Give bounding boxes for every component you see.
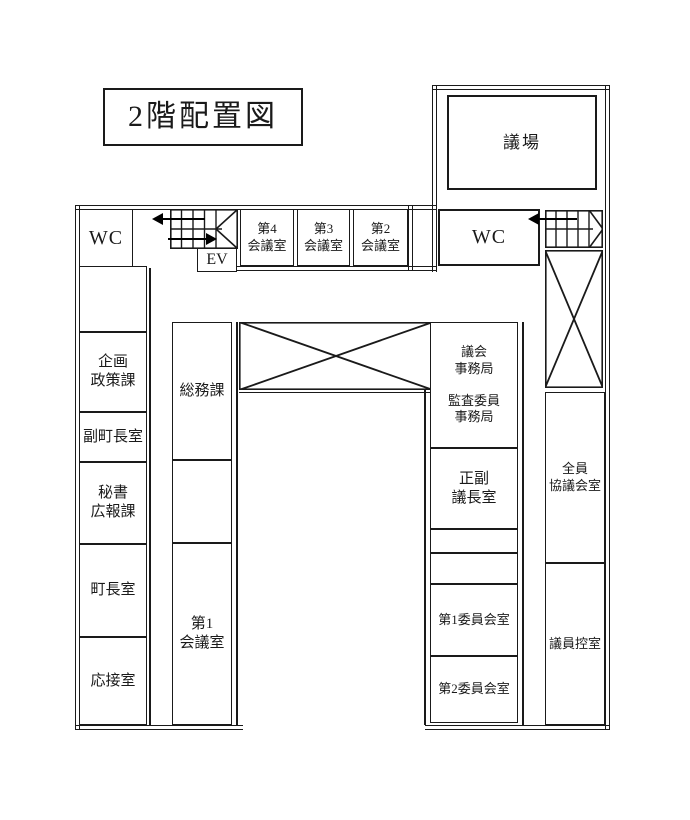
room-label: 全員 協議会室 <box>549 461 601 494</box>
wall-leftwing-inner <box>149 268 151 725</box>
room-meeting-3: 第3 会議室 <box>297 209 350 266</box>
room-label: 第1委員会室 <box>438 612 510 628</box>
room-meeting-1: 第1 会議室 <box>172 543 232 725</box>
wall-under-void <box>239 392 433 394</box>
room-planning-policy: 企画 政策課 <box>79 332 147 412</box>
room-members-waiting: 議員控室 <box>545 563 605 725</box>
stair-arrow-left-shaft <box>161 218 205 220</box>
room-wc-left: WC <box>79 209 133 268</box>
stair-arrow-right-shaft <box>168 238 208 240</box>
stair-arrow-right-icon <box>206 233 217 245</box>
wall-leftcol-right <box>236 322 238 725</box>
staircase-right <box>545 210 603 248</box>
room-label: WC <box>472 225 506 250</box>
void-cross-icon <box>239 322 433 390</box>
room-elevator: EV <box>197 248 237 272</box>
room-empty-right-1 <box>430 529 518 553</box>
room-label: 秘書 広報課 <box>90 484 135 522</box>
room-label: 副町長室 <box>83 428 143 447</box>
room-label: 第3 会議室 <box>304 221 343 254</box>
room-mayor: 町長室 <box>79 544 147 637</box>
room-label: 応接室 <box>90 672 135 691</box>
room-empty-left-top <box>79 266 147 332</box>
room-empty-right-2 <box>430 553 518 584</box>
wall-rightcol-right <box>522 322 524 725</box>
room-label: 議場 <box>503 132 541 153</box>
room-label: 町長室 <box>90 581 135 600</box>
room-label: 正副 議長室 <box>451 470 496 508</box>
floor-plan-canvas: 2階配置図 WC EV 第4 会議室 第3 会議室 第2 会議室 議場 WC <box>0 0 690 820</box>
room-meeting-4: 第4 会議室 <box>240 209 294 266</box>
room-label: 第1 会議室 <box>179 615 224 653</box>
room-assembly-audit-secretariat: 議会 事務局 監査委員 事務局 <box>430 322 518 448</box>
stair-arrow-right-wing-shaft <box>537 218 577 220</box>
room-chair-vicechair: 正副 議長室 <box>430 448 518 529</box>
room-wc-right: WC <box>438 209 540 266</box>
wall-band-bottom <box>237 266 437 271</box>
void-area-right <box>545 250 603 388</box>
room-meeting-2: 第2 会議室 <box>353 209 408 266</box>
page-title: 2階配置図 <box>128 102 278 132</box>
room-secretary-pr: 秘書 広報課 <box>79 462 147 544</box>
staircase-left <box>170 209 238 249</box>
staircase-right-drawing <box>545 210 603 248</box>
title-box: 2階配置図 <box>103 88 303 146</box>
wall-right-outer <box>605 85 610 730</box>
room-label: 企画 政策課 <box>90 353 135 391</box>
room-empty-inner-left <box>172 460 232 543</box>
wall-neck-left <box>408 205 413 271</box>
wall-rightleg-bottom <box>425 725 610 730</box>
staircase-left-drawing <box>170 209 238 249</box>
elevator-label: EV <box>206 250 227 270</box>
wall-leftleg-bottom <box>75 725 243 730</box>
wall-block-left <box>432 85 437 272</box>
room-general-affairs: 総務課 <box>172 322 232 460</box>
room-reception: 応接室 <box>79 637 147 725</box>
wall-block-top <box>432 85 610 90</box>
void-cross-icon <box>545 250 603 388</box>
room-label: 第2委員会室 <box>438 681 510 697</box>
void-area-middle <box>239 322 433 390</box>
room-label: 議員控室 <box>549 636 601 652</box>
room-deputy-mayor: 副町長室 <box>79 412 147 462</box>
room-all-members-council: 全員 協議会室 <box>545 392 605 563</box>
room-label: 議会 事務局 監査委員 事務局 <box>448 344 500 425</box>
room-assembly-hall: 議場 <box>447 95 597 190</box>
room-committee-2: 第2委員会室 <box>430 656 518 723</box>
room-label: WC <box>89 226 123 251</box>
room-committee-1: 第1委員会室 <box>430 584 518 656</box>
room-label: 総務課 <box>179 382 224 401</box>
room-label: 第2 会議室 <box>361 221 400 254</box>
room-label: 第4 会議室 <box>247 221 286 254</box>
